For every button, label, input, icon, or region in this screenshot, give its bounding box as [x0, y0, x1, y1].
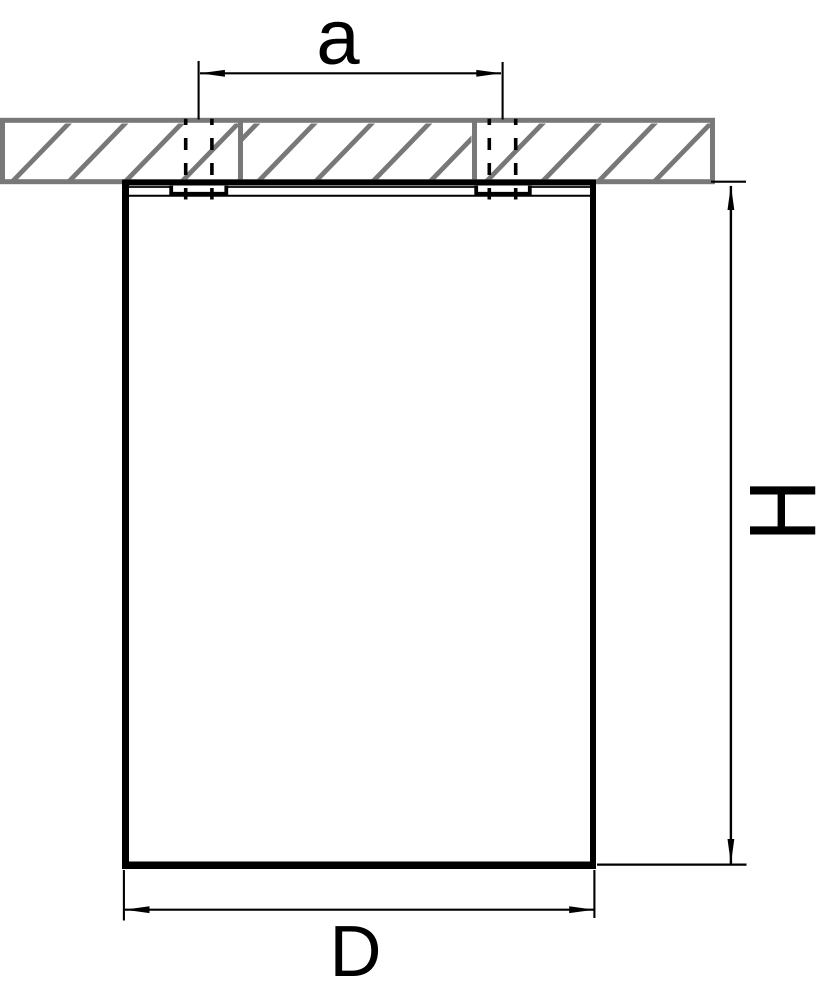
svg-text:D: D	[330, 912, 382, 992]
svg-text:H: H	[730, 479, 816, 541]
svg-text:a: a	[316, 0, 360, 80]
